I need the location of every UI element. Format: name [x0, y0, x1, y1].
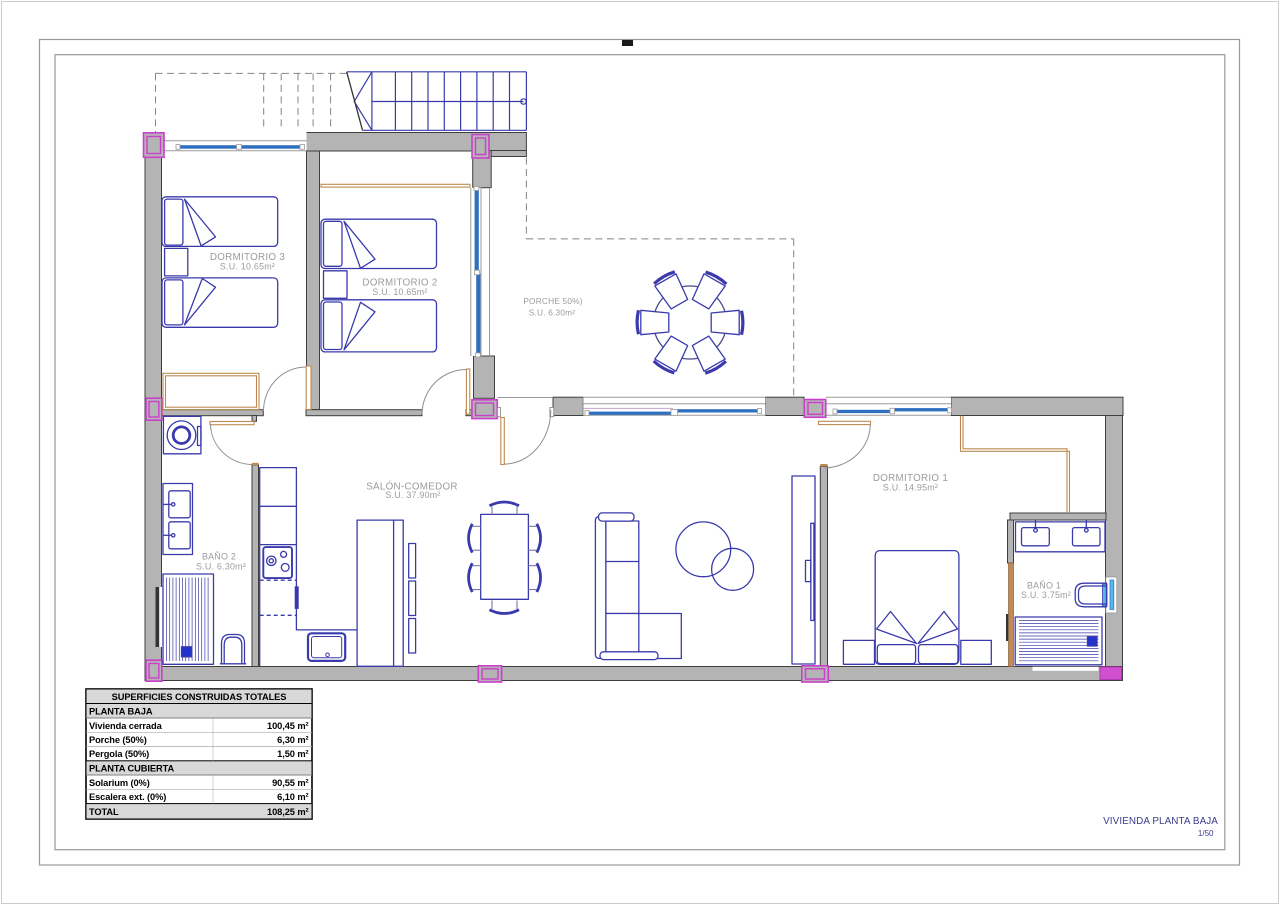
svg-text:S.U. 37.90m²: S.U. 37.90m²: [385, 490, 440, 500]
svg-text:VIVIENDA PLANTA BAJA: VIVIENDA PLANTA BAJA: [1103, 816, 1218, 827]
svg-text:6,30 m²: 6,30 m²: [277, 735, 308, 745]
svg-text:SUPERFICIES CONSTRUIDAS TOTALE: SUPERFICIES CONSTRUIDAS TOTALES: [112, 692, 287, 702]
svg-text:PLANTA CUBIERTA: PLANTA CUBIERTA: [89, 764, 174, 774]
svg-text:Escalera ext. (0%): Escalera ext. (0%): [89, 792, 166, 802]
svg-text:BAÑO 2: BAÑO 2: [202, 552, 236, 562]
svg-text:PORCHE 50%): PORCHE 50%): [523, 296, 582, 306]
svg-text:S.U. 14.95m²: S.U. 14.95m²: [883, 483, 938, 493]
svg-text:100,45 m²: 100,45 m²: [267, 721, 308, 731]
svg-text:TOTAL: TOTAL: [89, 807, 119, 817]
svg-text:1/50: 1/50: [1198, 829, 1214, 838]
svg-text:S.U. 10.65m²: S.U. 10.65m²: [372, 287, 427, 297]
svg-text:Porche (50%): Porche (50%): [89, 735, 147, 745]
svg-text:S.U. 6.30m²: S.U. 6.30m²: [529, 308, 576, 318]
svg-text:1,50 m²: 1,50 m²: [277, 749, 308, 759]
svg-text:S.U. 6.30m²: S.U. 6.30m²: [196, 562, 246, 572]
svg-text:90,55 m²: 90,55 m²: [272, 778, 308, 788]
svg-text:S.U. 3.75m²: S.U. 3.75m²: [1021, 590, 1071, 600]
svg-text:6,10 m²: 6,10 m²: [277, 792, 308, 802]
svg-text:108,25 m²: 108,25 m²: [267, 807, 308, 817]
svg-text:Pergola (50%): Pergola (50%): [89, 749, 149, 759]
svg-text:PLANTA BAJA: PLANTA BAJA: [89, 707, 153, 717]
svg-text:BAÑO 1: BAÑO 1: [1027, 581, 1061, 591]
svg-text:Vivienda cerrada: Vivienda cerrada: [89, 721, 163, 731]
svg-text:S.U. 10.65m²: S.U. 10.65m²: [220, 262, 275, 272]
svg-text:Solarium (0%): Solarium (0%): [89, 778, 150, 788]
